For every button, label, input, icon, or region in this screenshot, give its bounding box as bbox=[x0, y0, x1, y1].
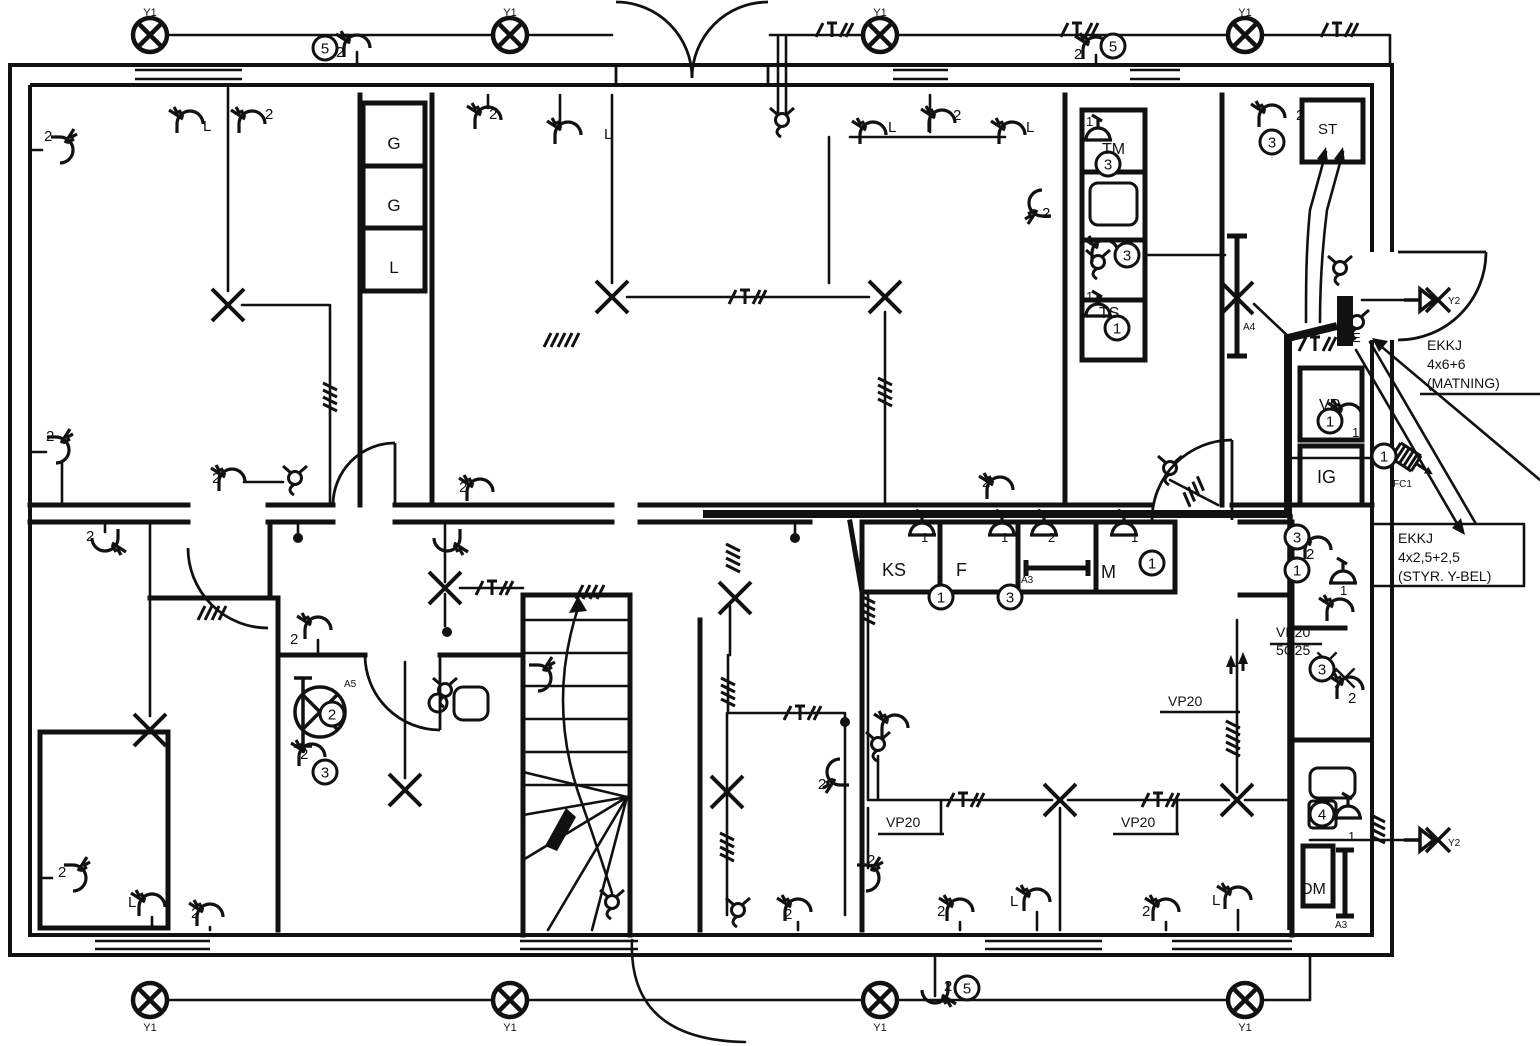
text-label: 2 bbox=[982, 474, 990, 491]
circled-reference: 3 bbox=[313, 760, 337, 784]
text-label: VP20 bbox=[1276, 624, 1310, 640]
circled-reference: 1 bbox=[929, 585, 953, 609]
text-label: M bbox=[1101, 562, 1116, 582]
washer bbox=[1310, 768, 1355, 798]
circled-number: 3 bbox=[1293, 530, 1301, 547]
outdoor-lamp-icon bbox=[863, 983, 897, 1017]
text-label: 1 bbox=[1001, 530, 1008, 545]
circled-number: 1 bbox=[1113, 321, 1121, 338]
switch-icon bbox=[921, 106, 955, 132]
wall-lamp-icon bbox=[1404, 288, 1450, 312]
circled-number: 5 bbox=[963, 981, 971, 998]
riser-arrow-icon bbox=[1226, 655, 1236, 674]
text-label: (STYR. Y-BEL) bbox=[1398, 568, 1491, 584]
text-label: TS bbox=[1099, 305, 1119, 322]
circled-reference: 3 bbox=[1115, 243, 1139, 267]
text-label: 2 bbox=[86, 528, 94, 545]
junction-dot bbox=[293, 533, 303, 543]
inner-room bbox=[40, 732, 168, 928]
circled-number: 3 bbox=[1268, 135, 1276, 152]
circled-number: 3 bbox=[1006, 590, 1014, 607]
switch-icon bbox=[1217, 883, 1251, 909]
text-label: G bbox=[387, 196, 400, 215]
text-label: 2 bbox=[290, 631, 298, 648]
text-label: 2 bbox=[459, 479, 467, 496]
outdoor-lamp-icon bbox=[1228, 18, 1262, 52]
text-label: (MATNING) bbox=[1427, 375, 1500, 391]
text-label: FC1 bbox=[1393, 479, 1412, 490]
conductor-count-mark bbox=[198, 606, 226, 620]
pendant-lamp-icon bbox=[726, 898, 750, 927]
circled-number: 1 bbox=[1293, 563, 1301, 580]
pendant-lamp-icon bbox=[600, 890, 624, 919]
text-label: A3 bbox=[1335, 920, 1348, 931]
text-label: KS bbox=[882, 560, 906, 580]
outdoor-lamp-icon bbox=[493, 983, 527, 1017]
text-label: Y1 bbox=[873, 1022, 886, 1034]
text-label: 2 bbox=[818, 776, 826, 793]
outdoor-lamp-icon bbox=[133, 18, 167, 52]
toilet-tank bbox=[454, 687, 488, 720]
text-label: Y1 bbox=[143, 1022, 156, 1034]
text-label: 2 bbox=[44, 128, 52, 145]
circled-number: 3 bbox=[1123, 248, 1131, 265]
text-label: L bbox=[888, 119, 896, 136]
text-label: 2 bbox=[191, 905, 199, 922]
text-label: Y2 bbox=[1448, 838, 1461, 849]
text-label: G bbox=[387, 134, 400, 153]
switch-icon bbox=[777, 895, 811, 921]
switch-icon bbox=[64, 857, 90, 891]
text-label: 2 bbox=[58, 864, 66, 881]
circled-reference: 3 bbox=[1310, 657, 1334, 681]
text-label: 1 bbox=[1086, 289, 1093, 304]
circled-number: 5 bbox=[321, 41, 329, 58]
text-label: 2 bbox=[944, 978, 952, 995]
circled-reference: 1 bbox=[1140, 551, 1164, 575]
text-label: 2 bbox=[1296, 107, 1304, 124]
circled-number: 3 bbox=[321, 765, 329, 782]
wall-lamp-icon bbox=[1404, 828, 1450, 852]
ceiling-outlet-icon bbox=[719, 582, 751, 614]
circled-number: 1 bbox=[1148, 556, 1156, 573]
switch-icon bbox=[434, 529, 468, 555]
text-label: Y1 bbox=[503, 7, 516, 19]
pendant-lamp-icon bbox=[283, 466, 307, 495]
circled-number: 4 bbox=[1318, 807, 1326, 824]
text-label: 2 bbox=[489, 106, 497, 123]
text-label: L bbox=[389, 258, 398, 277]
circled-number: 1 bbox=[1326, 414, 1334, 431]
text-label: EKKJ bbox=[1427, 337, 1462, 353]
switch-icon bbox=[92, 529, 126, 555]
switch-icon bbox=[51, 129, 77, 163]
fluorescent-a3 bbox=[1026, 560, 1088, 576]
text-label: 2 bbox=[1142, 903, 1150, 920]
circled-reference: 1 bbox=[1372, 444, 1396, 468]
text-label: Y1 bbox=[143, 7, 156, 19]
stairs bbox=[523, 596, 630, 930]
outdoor-lamp-icon bbox=[863, 18, 897, 52]
junction-dot bbox=[442, 627, 452, 637]
circled-reference: 5 bbox=[1101, 34, 1125, 58]
outdoor-lamp-icon bbox=[493, 18, 527, 52]
fluorescent-a3b bbox=[1336, 850, 1354, 916]
circled-number: 2 bbox=[328, 707, 336, 724]
text-label: VP20 bbox=[1121, 814, 1155, 830]
text-label: 1 bbox=[1352, 425, 1359, 440]
switch-icon bbox=[1319, 595, 1353, 621]
pendant-lamp-icon bbox=[1086, 250, 1110, 279]
ceiling-outlet-icon bbox=[212, 289, 244, 321]
text-label: 1 bbox=[1348, 829, 1355, 844]
conductor-count-mark bbox=[544, 333, 579, 347]
windows bbox=[95, 70, 1292, 949]
floor-plan-page: 555333113111313234 Y1Y1Y1Y1Y1Y1Y1Y1Y2Y22… bbox=[0, 0, 1540, 1046]
circled-reference: 2 bbox=[320, 702, 344, 726]
circled-number: 3 bbox=[1318, 662, 1326, 679]
text-label: 2 bbox=[1074, 46, 1082, 63]
text-label: 1 bbox=[1131, 530, 1138, 545]
circled-number: 1 bbox=[1380, 449, 1388, 466]
text-label: 2 bbox=[336, 44, 344, 61]
text-label: L bbox=[604, 126, 612, 143]
ceiling-outlet-icon bbox=[596, 281, 628, 313]
text-label: 2 bbox=[265, 106, 273, 123]
junction-dot bbox=[790, 533, 800, 543]
text-label: E bbox=[1352, 330, 1361, 345]
junction-dot bbox=[840, 717, 850, 727]
switch-icon bbox=[169, 107, 203, 133]
outdoor-lamp-icon bbox=[133, 983, 167, 1017]
sink bbox=[1090, 183, 1137, 225]
circled-number: 1 bbox=[937, 590, 945, 607]
text-label: 1 bbox=[1086, 114, 1093, 129]
text-label: 2 bbox=[1306, 546, 1314, 563]
circled-number: 5 bbox=[1109, 39, 1117, 56]
text-label: 2 bbox=[300, 746, 308, 763]
conductor-count-mark bbox=[726, 544, 740, 572]
text-label: ST bbox=[1318, 121, 1337, 138]
text-label: 2 bbox=[1042, 205, 1050, 222]
text-label: A5 bbox=[344, 679, 357, 690]
text-label: DM bbox=[1301, 881, 1326, 898]
conductor-count-mark bbox=[1299, 337, 1336, 351]
outdoor-lamp-icon bbox=[1228, 983, 1262, 1017]
text-label: VP bbox=[1319, 397, 1340, 414]
circled-reference: 4 bbox=[1310, 802, 1334, 826]
text-label: 1 bbox=[921, 530, 928, 545]
circled-reference: 3 bbox=[998, 585, 1022, 609]
text-label: Y1 bbox=[503, 1022, 516, 1034]
text-label: 2 bbox=[867, 852, 875, 869]
text-label: Y2 bbox=[1448, 296, 1461, 307]
text-label: L bbox=[1212, 892, 1220, 909]
text-label: Y1 bbox=[1238, 7, 1251, 19]
text-label: 4x6+6 bbox=[1427, 356, 1466, 372]
switch-icon bbox=[1016, 885, 1050, 911]
text-label: Y1 bbox=[1238, 1022, 1251, 1034]
switch-icon bbox=[852, 118, 886, 144]
switch-icon bbox=[297, 613, 331, 639]
socket-icon bbox=[1329, 558, 1357, 583]
pendant-lamp-icon bbox=[1328, 256, 1352, 285]
switch-icon bbox=[231, 107, 265, 133]
text-label: 2 bbox=[1348, 690, 1356, 707]
text-label: VP20 bbox=[1168, 693, 1202, 709]
switch-icon bbox=[991, 118, 1025, 144]
text-label: 5G25 bbox=[1276, 642, 1310, 658]
cables bbox=[30, 35, 1406, 1042]
text-label: TM bbox=[1102, 141, 1125, 158]
pendant-lamp-icon bbox=[770, 108, 794, 137]
switch-icon bbox=[547, 118, 581, 144]
text-label: A3 bbox=[1021, 575, 1034, 586]
text-label: 2 bbox=[784, 906, 792, 923]
text-label: 2 bbox=[46, 428, 54, 445]
electrical-plan-svg: 555333113111313234 Y1Y1Y1Y1Y1Y1Y1Y1Y2Y22… bbox=[0, 0, 1540, 1046]
text-label: L bbox=[128, 894, 136, 911]
text-label: L bbox=[1010, 893, 1018, 910]
circled-reference: 3 bbox=[1260, 130, 1284, 154]
text-label: L bbox=[1026, 119, 1034, 136]
text-label: 1 bbox=[1340, 583, 1347, 598]
text-label: 2 bbox=[212, 470, 220, 487]
ceiling-outlet-icon bbox=[869, 281, 901, 313]
riser-arrow-icon bbox=[1238, 652, 1248, 671]
text-label: F bbox=[956, 560, 967, 580]
text-label: IG bbox=[1317, 467, 1336, 487]
switch-icon bbox=[1251, 101, 1285, 127]
circled-reference: 5 bbox=[955, 976, 979, 1000]
text-label: L bbox=[203, 118, 211, 135]
text-label: 4x2,5+2,5 bbox=[1398, 549, 1460, 565]
text-label: EKKJ bbox=[1398, 530, 1433, 546]
text-label: Y1 bbox=[873, 7, 886, 19]
circled-number: 3 bbox=[1104, 157, 1112, 174]
text-label: 2 bbox=[937, 903, 945, 920]
switch-icon bbox=[874, 711, 908, 737]
text-label: A4 bbox=[1243, 322, 1256, 333]
circled-reference: 5 bbox=[313, 36, 337, 60]
text-label: 2 bbox=[1048, 530, 1055, 545]
text-label: VP20 bbox=[886, 814, 920, 830]
text-label: 2 bbox=[953, 107, 961, 124]
